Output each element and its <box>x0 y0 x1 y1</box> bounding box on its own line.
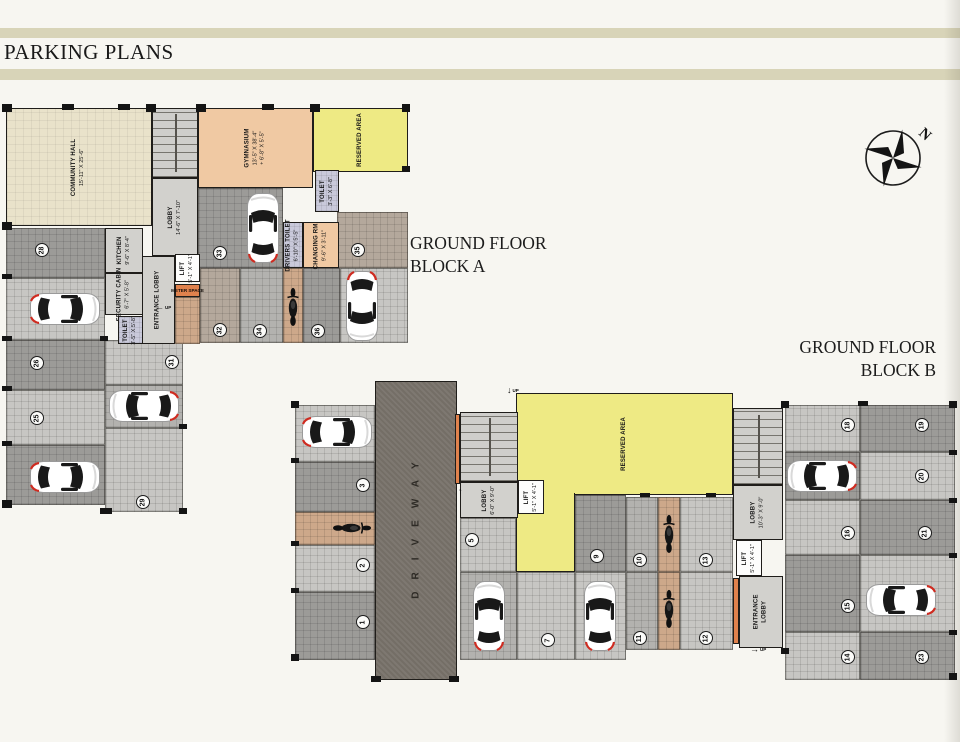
block_a-parking-spot-number-29: 29 <box>136 495 150 509</box>
block_b-parked-car-5 <box>865 582 937 618</box>
stairwell-a <box>152 108 198 178</box>
wall-column-tick-36 <box>640 493 650 497</box>
wall-column-tick-33 <box>949 630 957 635</box>
block_b-parked-car-3 <box>582 580 618 652</box>
block_b-parking-spot-number-23: 23 <box>915 650 929 664</box>
block_b-parking-spot-number-16: 16 <box>841 526 855 540</box>
wall-column-tick-28 <box>858 401 868 406</box>
lift-b-left-label: LIFT <box>524 483 532 512</box>
wall-column-tick-15 <box>2 500 12 508</box>
block_b-parking-spot-number-21: 21 <box>918 526 932 540</box>
toilet-top-a-label: TOILET <box>320 177 328 206</box>
block_a-parking-spot-number-36: 36 <box>311 324 325 338</box>
kitchen-dims: 9'-6" X 8'-4" <box>124 236 131 265</box>
room-lobby-b-left: LOBBY 6'-0" X 9'-0" <box>460 482 518 518</box>
entrance-lobby-b-label1: ENTRANCE <box>753 595 761 630</box>
driveway-label: DRIVEWAY <box>410 450 423 610</box>
block_b-parking-spot-number-12: 12 <box>699 631 713 645</box>
block_a-parked-motorcycle-1 <box>286 287 300 327</box>
block_b-parking-spot-number-3: 3 <box>356 478 370 492</box>
room-gymnasium: GYMNASIUM 13'-5" X 38'-4" + 6'-8" X 5'-5… <box>198 108 313 188</box>
gymnasium-label: GYMNASIUM <box>244 128 252 167</box>
lobby-b-right-label: LOBBY <box>751 497 759 529</box>
room-lift-a: LIFT 5'-1" X 4'-1" <box>175 254 200 282</box>
room-lift-b-right: LIFT 5'-1" X 4'-1" <box>736 540 762 576</box>
wall-column-tick-14 <box>2 441 12 446</box>
room-meter-space: METER SPACE <box>175 284 200 297</box>
block_a-parking-floor-corridor <box>175 297 200 344</box>
entry-up-arrow-1: ←UP <box>155 303 171 312</box>
room-community-hall: COMMUNITY HALL 15'-11" X 25'-6" <box>6 108 152 226</box>
stairwell-b-left <box>460 412 518 482</box>
block_b-parked-motorcycle-1 <box>332 521 372 535</box>
room-security-cabin: SECURITY CABIN 6'-7" X 5'-8" <box>105 273 143 315</box>
wall-column-tick-37 <box>706 493 716 497</box>
wall-column-tick-16 <box>100 508 112 514</box>
block_a-parking-spot-number-34: 34 <box>253 324 267 338</box>
block_b-parked-motorcycle-2 <box>662 514 676 554</box>
block_a-parked-car-4 <box>245 192 281 264</box>
security-cabin-label: SECURITY CABIN <box>117 267 125 321</box>
block_a-parking-spot-number-32: 32 <box>213 323 227 337</box>
toilet-small-a-label: TOILET <box>123 316 131 345</box>
block_b-parking-spot-number-10: 10 <box>633 553 647 567</box>
reserved-area-b-label: RESERVED AREA <box>621 417 629 471</box>
wall-column-tick-2 <box>62 104 74 110</box>
block_b-parking-spot-number-14: 14 <box>841 650 855 664</box>
drivers-toilet-dims: 6'-10" X 5'-5" <box>293 219 300 271</box>
wall-column-tick-9 <box>402 166 410 172</box>
driveway: DRIVEWAY <box>375 381 457 680</box>
wall-column-tick-22 <box>291 541 299 546</box>
wall-column-tick-24 <box>291 654 299 661</box>
floor-plan-canvas: COMMUNITY HALL 15'-11" X 25'-6" LOBBY 14… <box>0 0 960 742</box>
block_b-parking-spot-number-7: 7 <box>541 633 555 647</box>
block_a-parked-car-1 <box>29 291 101 327</box>
block_a-parked-car-3 <box>108 388 180 424</box>
lobby-a-dims: 14'-6" X 7'-10" <box>175 200 182 235</box>
entry-up-arrow-2: ↓UP <box>507 386 519 395</box>
block_a-parking-spot-number-26: 26 <box>30 356 44 370</box>
block_a-parking-spot-number-33: 33 <box>213 246 227 260</box>
toilet-small-a-dims: 3'-5" X 5'-8" <box>131 316 138 345</box>
block_a-parking-spot-number-31: 31 <box>165 355 179 369</box>
block_b-parking-spot-number-20: 20 <box>915 469 929 483</box>
room-toilet-top-a: TOILET 3'-3" X 6'-8" <box>315 170 339 212</box>
block_b-parking-floor-s21 <box>860 500 955 555</box>
lift-b-left-dims: 5'-1" X 4'-1" <box>531 483 538 512</box>
lift-a-dims: 5'-1" X 4'-1" <box>188 254 195 283</box>
wall-column-tick-34 <box>949 673 957 680</box>
lobby-b-right-dims: 10'-3" X 9'-0" <box>758 497 765 529</box>
kitchen-label: KITCHEN <box>117 236 125 265</box>
block_b-parking-floor-s23 <box>860 632 955 680</box>
wall-column-tick-10 <box>2 222 12 230</box>
wall-column-tick-27 <box>781 401 789 408</box>
entrance-lobby-b-label2: LOBBY <box>761 595 769 630</box>
community-hall-dims: 15'-11" X 25'-6" <box>79 138 86 195</box>
wall-column-tick-23 <box>291 588 299 593</box>
block_b-parking-floor-s19 <box>860 405 955 452</box>
wall-column-tick-4 <box>146 104 156 112</box>
block_b-parked-motorcycle-3 <box>662 589 676 629</box>
wall-column-tick-11 <box>2 274 12 279</box>
wall-column-tick-18 <box>179 424 187 429</box>
wall-column-tick-6 <box>262 104 274 110</box>
block_b-parking-floor-s15 <box>785 555 860 632</box>
block_b-parking-spot-number-19: 19 <box>915 418 929 432</box>
block_a-parking-spot-number-28: 28 <box>35 243 49 257</box>
room-entrance-lobby-a: ENTRANCE LOBBY <box>142 256 175 344</box>
entrance-lobby-a-label: ENTRANCE LOBBY <box>155 271 163 330</box>
wall-column-tick-25 <box>371 676 381 682</box>
changing-room-dims: 9'-6" X 3'-11" <box>321 221 328 269</box>
reserved-area-a-label: RESERVED AREA <box>357 113 365 167</box>
room-entrance-lobby-b: ENTRANCE LOBBY <box>739 576 783 648</box>
meter-space-label: METER SPACE <box>171 288 204 293</box>
block_b-parking-spot-number-9: 9 <box>590 549 604 563</box>
gymnasium-dims2: + 6'-8" X 5'-5" <box>259 128 266 167</box>
block_b-parking-spot-number-15: 15 <box>841 599 855 613</box>
entry-strip-b-right <box>733 578 739 644</box>
wall-column-tick-17 <box>179 508 187 514</box>
room-toilet-small-a: TOILET 3'-5" X 5'-8" <box>118 316 143 344</box>
changing-room-label: CHANGING RM. <box>314 221 322 269</box>
room-lobby-a: LOBBY 14'-6" X 7'-10" <box>152 178 198 256</box>
wall-column-tick-30 <box>949 450 957 455</box>
wall-column-tick-7 <box>310 104 320 112</box>
block_b-parking-floor-s20 <box>860 452 955 500</box>
wall-column-tick-26 <box>449 676 459 682</box>
wall-column-tick-8 <box>402 104 410 112</box>
room-reserved-area-a: RESERVED AREA <box>313 108 408 172</box>
block_b-parking-spot-number-1: 1 <box>356 615 370 629</box>
lobby-b-left-label: LOBBY <box>482 486 490 515</box>
community-hall-label: COMMUNITY HALL <box>72 138 80 195</box>
block_b-parking-spot-number-18: 18 <box>841 418 855 432</box>
block_b-parking-spot-number-5: 5 <box>465 533 479 547</box>
entry-up-arrow-4: →UP <box>750 645 766 654</box>
wall-column-tick-20 <box>291 401 299 408</box>
lobby-a-label: LOBBY <box>168 200 176 235</box>
block_a-parking-spot-number-35: 35 <box>351 243 365 257</box>
wall-column-tick-13 <box>2 386 12 391</box>
wall-column-tick-19 <box>100 336 108 341</box>
block_b-parking-spot-number-2: 2 <box>356 558 370 572</box>
stairwell-b-right <box>733 408 783 485</box>
room-drivers-toilet: DRIVERS TOILET 6'-10" X 5'-5" <box>283 222 303 268</box>
entry-up-arrow-3: ↑ <box>458 487 464 496</box>
wall-column-tick-5 <box>196 104 206 112</box>
lift-b-right-dims: 5'-1" X 4'-1" <box>749 544 756 573</box>
drivers-toilet-label: DRIVERS TOILET <box>286 219 294 271</box>
gymnasium-dims1: 13'-5" X 38'-4" <box>252 128 259 167</box>
block_a-parking-spot-number-25: 25 <box>30 411 44 425</box>
room-kitchen: KITCHEN 9'-6" X 8'-4" <box>105 228 143 273</box>
wall-column-tick-21 <box>291 458 299 463</box>
security-cabin-dims: 6'-7" X 5'-8" <box>124 267 131 321</box>
room-lobby-b-right: LOBBY 10'-3" X 9'-0" <box>733 485 783 540</box>
block_b-parked-car-2 <box>471 580 507 652</box>
room-changing-room: CHANGING RM. 9'-6" X 3'-11" <box>303 222 339 268</box>
wall-column-tick-35 <box>781 648 789 654</box>
entry-strip-b-left <box>455 414 460 484</box>
lift-b-right-label: LIFT <box>742 544 750 573</box>
block_b-parked-car-4 <box>786 458 858 494</box>
wall-column-tick-3 <box>118 104 130 110</box>
block_a-parking-floor-s35-top <box>337 212 408 268</box>
block_a-parking-floor-s28 <box>6 228 105 278</box>
block_b-parking-spot-number-13: 13 <box>699 553 713 567</box>
block_b-parking-spot-number-11: 11 <box>633 631 647 645</box>
room-reserved-area-b: RESERVED AREA <box>516 393 733 495</box>
block_a-parked-car-2 <box>29 459 101 495</box>
block_a-parked-car-5 <box>344 270 380 342</box>
wall-column-tick-32 <box>949 553 957 558</box>
wall-column-tick-31 <box>949 498 957 503</box>
block_a-parking-floor-s25 <box>6 390 105 445</box>
wall-column-tick-12 <box>2 336 12 341</box>
lobby-b-left-dims: 6'-0" X 9'-0" <box>489 486 496 515</box>
block_a-parking-floor-s26 <box>6 340 105 390</box>
room-lift-b-left: LIFT 5'-1" X 4'-1" <box>518 480 544 514</box>
block_b-parked-car-1 <box>301 414 373 450</box>
wall-column-tick-29 <box>949 401 957 408</box>
wall-column-tick-1 <box>2 104 12 112</box>
toilet-top-a-dims: 3'-3" X 6'-8" <box>327 177 334 206</box>
parking-plans-sheet: PARKING PLANS N GROUND FLOOR BLOCK A GRO… <box>0 0 960 742</box>
